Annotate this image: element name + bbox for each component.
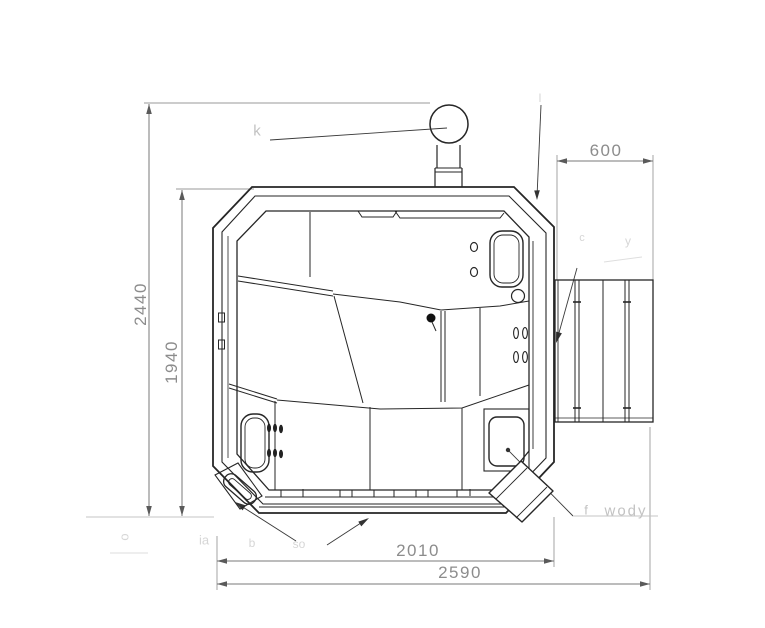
rim-hole [512,290,525,303]
drain-dot [427,314,436,323]
corner-handle [221,471,260,507]
dim-inner-height-label: 1940 [162,340,182,384]
rim-corner-label-fragment: l [539,91,542,105]
deck-screw-marks [573,302,631,408]
vent-slot [523,352,528,363]
deck-label-fragment-b: y [625,234,631,248]
leader-lines [238,105,658,545]
chimney-label-fragment: k [253,123,261,140]
drawing-linework [0,0,765,628]
dim-total-height-label: 2440 [131,282,151,326]
top-vent-tab [358,211,397,217]
bottom-label-fragment-a: ia [199,533,209,548]
rim-inner-contour [237,211,529,490]
rim-mid-contour [222,196,546,504]
watermark-strokes [110,257,642,553]
hatch-inner [489,417,524,466]
side-deck [555,280,653,422]
chimney-cap-circle [430,105,468,143]
vent-slot [514,328,519,339]
vent-slot [514,352,519,363]
drain-leader-dot [506,448,510,452]
jet [471,268,478,277]
rim-corner-leader [537,105,541,197]
rim-outer-contour [213,187,554,513]
deck-leader [557,268,577,340]
technical-drawing-canvas: 2440 1940 600 2010 2590 k l c y f wody i… [0,0,765,628]
corner-plate [215,463,262,509]
left-edge-label-fragment: o [117,533,132,540]
tub-body [213,187,554,513]
dim-body-width-label: 2010 [396,541,440,561]
dim-deck-width-label: 600 [590,141,623,161]
chimney [430,105,468,187]
drain-label-fragment: f [584,503,588,518]
vent-slot [523,328,528,339]
dim-total-width-label: 2590 [438,563,482,583]
bottom-label-fragment-c: so [293,537,306,551]
drain-label: wody [604,503,647,520]
deck-label-fragment-a: c [579,232,585,244]
jet [471,243,478,252]
bottom-label-fragment-b: b [249,536,256,550]
tub-fittings [215,231,553,522]
top-strip [395,211,504,218]
chimney-leader [270,128,447,140]
handle-leader [238,504,296,541]
